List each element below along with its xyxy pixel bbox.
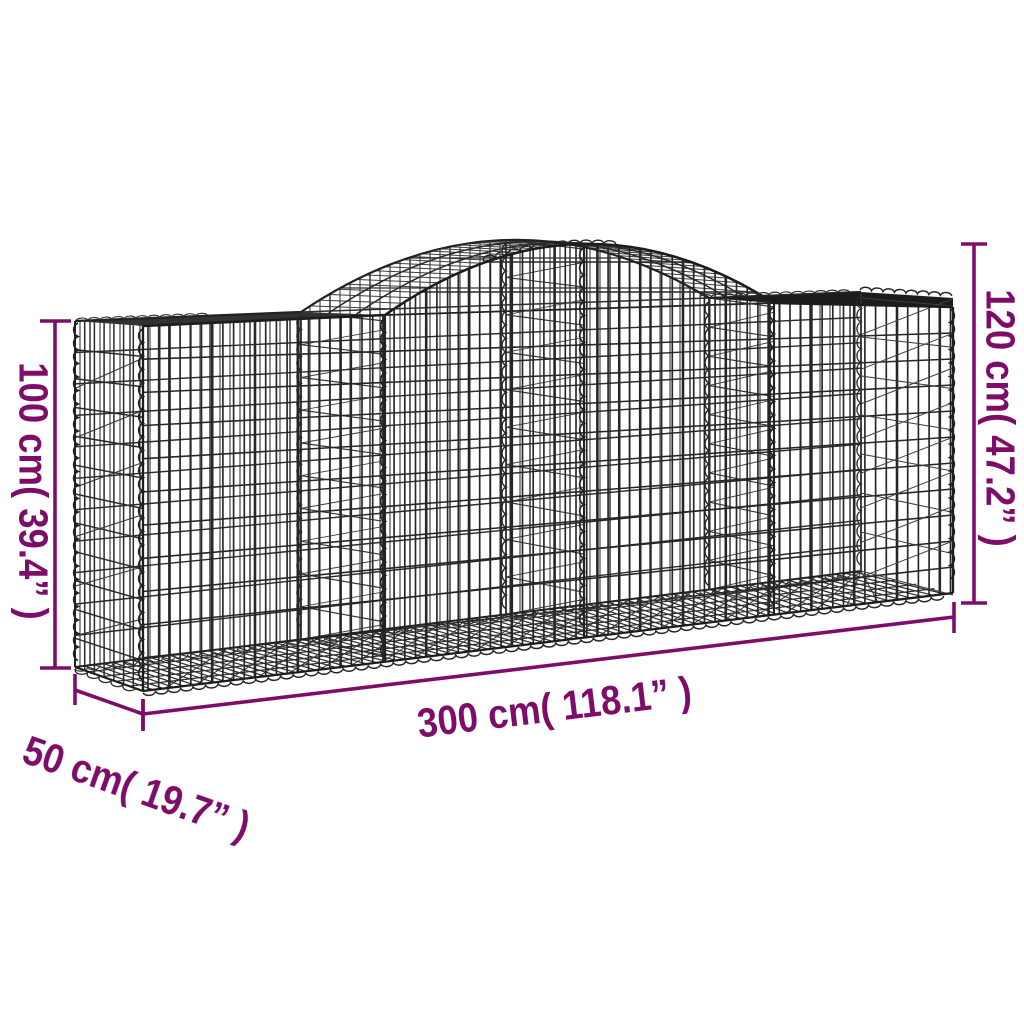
svg-text:300 cm( 118.1” ): 300 cm( 118.1” )	[415, 669, 694, 747]
svg-text:50 cm( 19.7” ): 50 cm( 19.7” )	[17, 728, 256, 850]
svg-text:100 cm( 39.4” ): 100 cm( 39.4” )	[10, 362, 55, 620]
svg-text:120 cm( 47.2” ): 120 cm( 47.2” )	[977, 289, 1022, 547]
